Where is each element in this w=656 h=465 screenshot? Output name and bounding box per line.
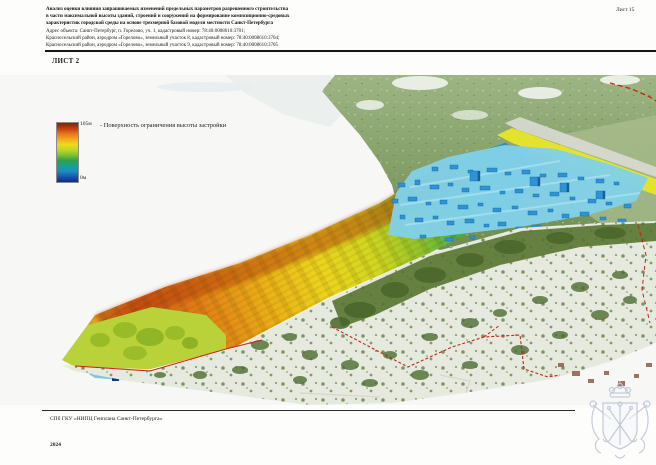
address-line: Красносельский район, аэродром «Горелово…: [46, 42, 386, 49]
footer-divider: [42, 410, 575, 411]
object-address: Адрес объекта: Санкт-Петербург, п. Горел…: [46, 28, 386, 49]
report-sheet: Анализ оценки влияния запрашиваемых изме…: [0, 0, 656, 465]
legend-max-label: 105м: [80, 121, 92, 127]
title-line: Анализ оценки влияния запрашиваемых изме…: [46, 6, 366, 13]
title-line: характеристик городской среды на основе …: [46, 20, 366, 27]
coat-of-arms-icon: [584, 381, 656, 465]
title-line: в части максимальной высоты зданий, стро…: [46, 13, 366, 20]
address-line: Красносельский район, аэродром «Горелово…: [46, 35, 386, 42]
report-title: Анализ оценки влияния запрашиваемых изме…: [46, 6, 366, 27]
height-legend: 105м 0м - Поверхность ограничения высоты…: [56, 121, 316, 183]
header-divider: [45, 50, 656, 52]
legend-description: - Поверхность ограничения высоты застрой…: [100, 122, 226, 129]
address-line: Адрес объекта: Санкт-Петербург, п. Горел…: [46, 28, 386, 35]
sheet-number: Лист 15: [616, 7, 634, 13]
document-year: 2024: [50, 442, 61, 448]
legend-min-label: 0м: [80, 175, 86, 181]
organization-name: СПб ГКУ «НИПЦ Генплана Санкт-Петербурга»: [50, 416, 162, 422]
sheet-label: ЛИСТ 2: [52, 57, 79, 65]
height-color-scale: [56, 122, 79, 183]
